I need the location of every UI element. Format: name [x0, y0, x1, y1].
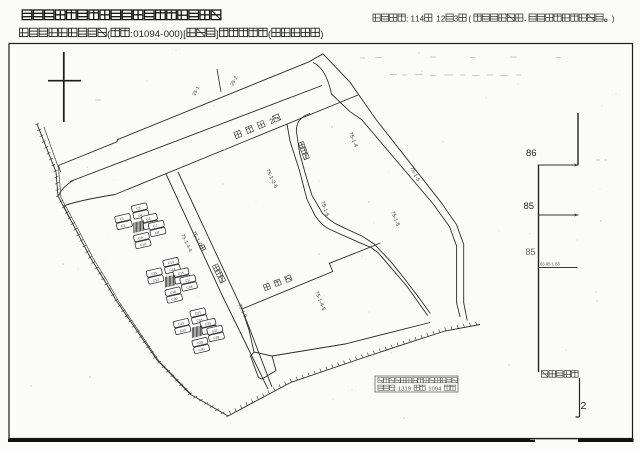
- svg-text:): ): [612, 15, 615, 24]
- svg-text::: :: [406, 15, 408, 24]
- svg-text:2: 2: [441, 15, 446, 24]
- svg-text:9: 9: [408, 387, 411, 393]
- svg-text:2: 2: [581, 400, 587, 412]
- svg-text:[: [: [183, 29, 186, 40]
- svg-text:86: 86: [526, 148, 537, 159]
- svg-text:85: 85: [524, 201, 535, 212]
- svg-text:(: (: [468, 15, 471, 24]
- svg-text:): ): [320, 29, 323, 40]
- svg-text:3: 3: [454, 15, 459, 24]
- svg-text:]: ]: [216, 29, 219, 40]
- svg-text:85: 85: [526, 247, 536, 257]
- svg-text:4: 4: [420, 15, 425, 24]
- svg-text:66 95 1 83: 66 95 1 83: [540, 262, 560, 267]
